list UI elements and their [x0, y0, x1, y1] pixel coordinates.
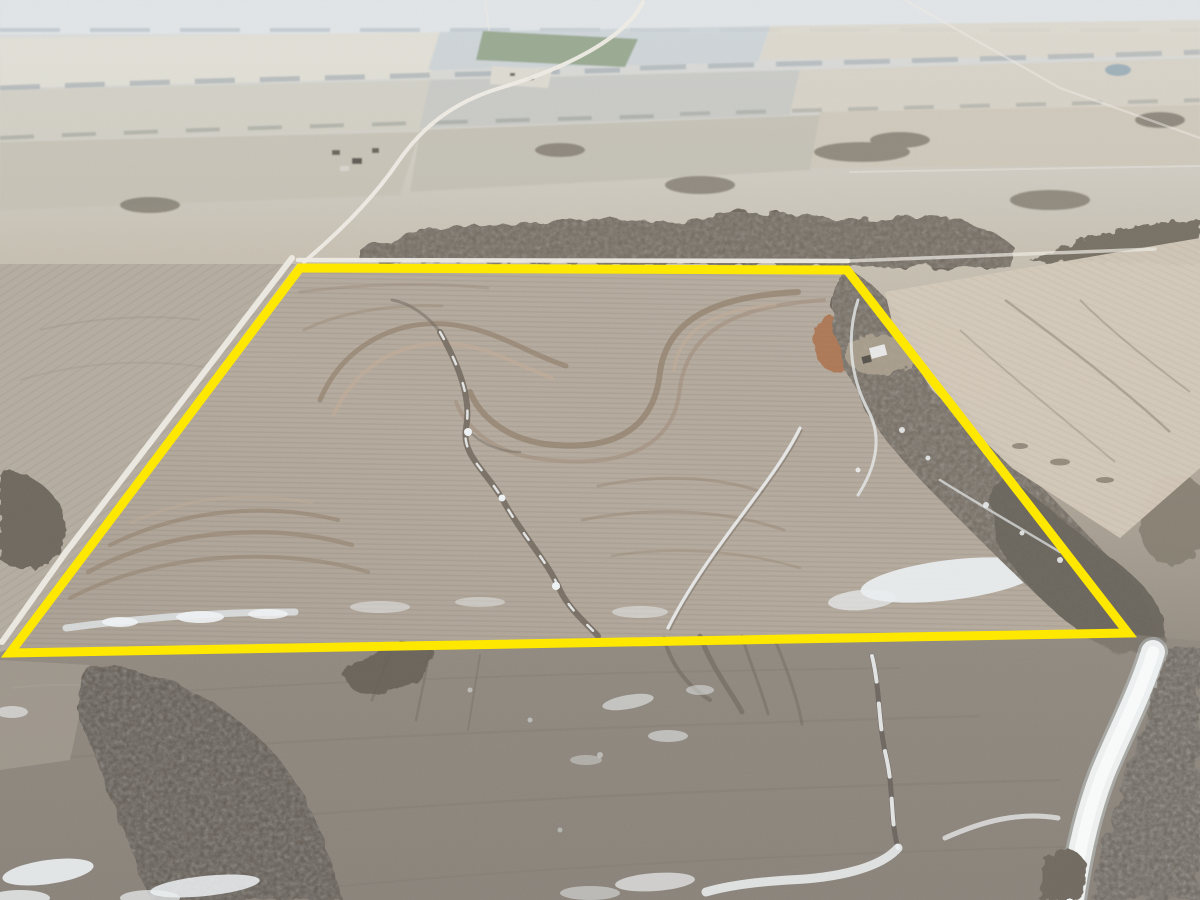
photo-grain — [0, 0, 1200, 900]
aerial-photo-canvas — [0, 0, 1200, 900]
aerial-photo — [0, 0, 1200, 900]
